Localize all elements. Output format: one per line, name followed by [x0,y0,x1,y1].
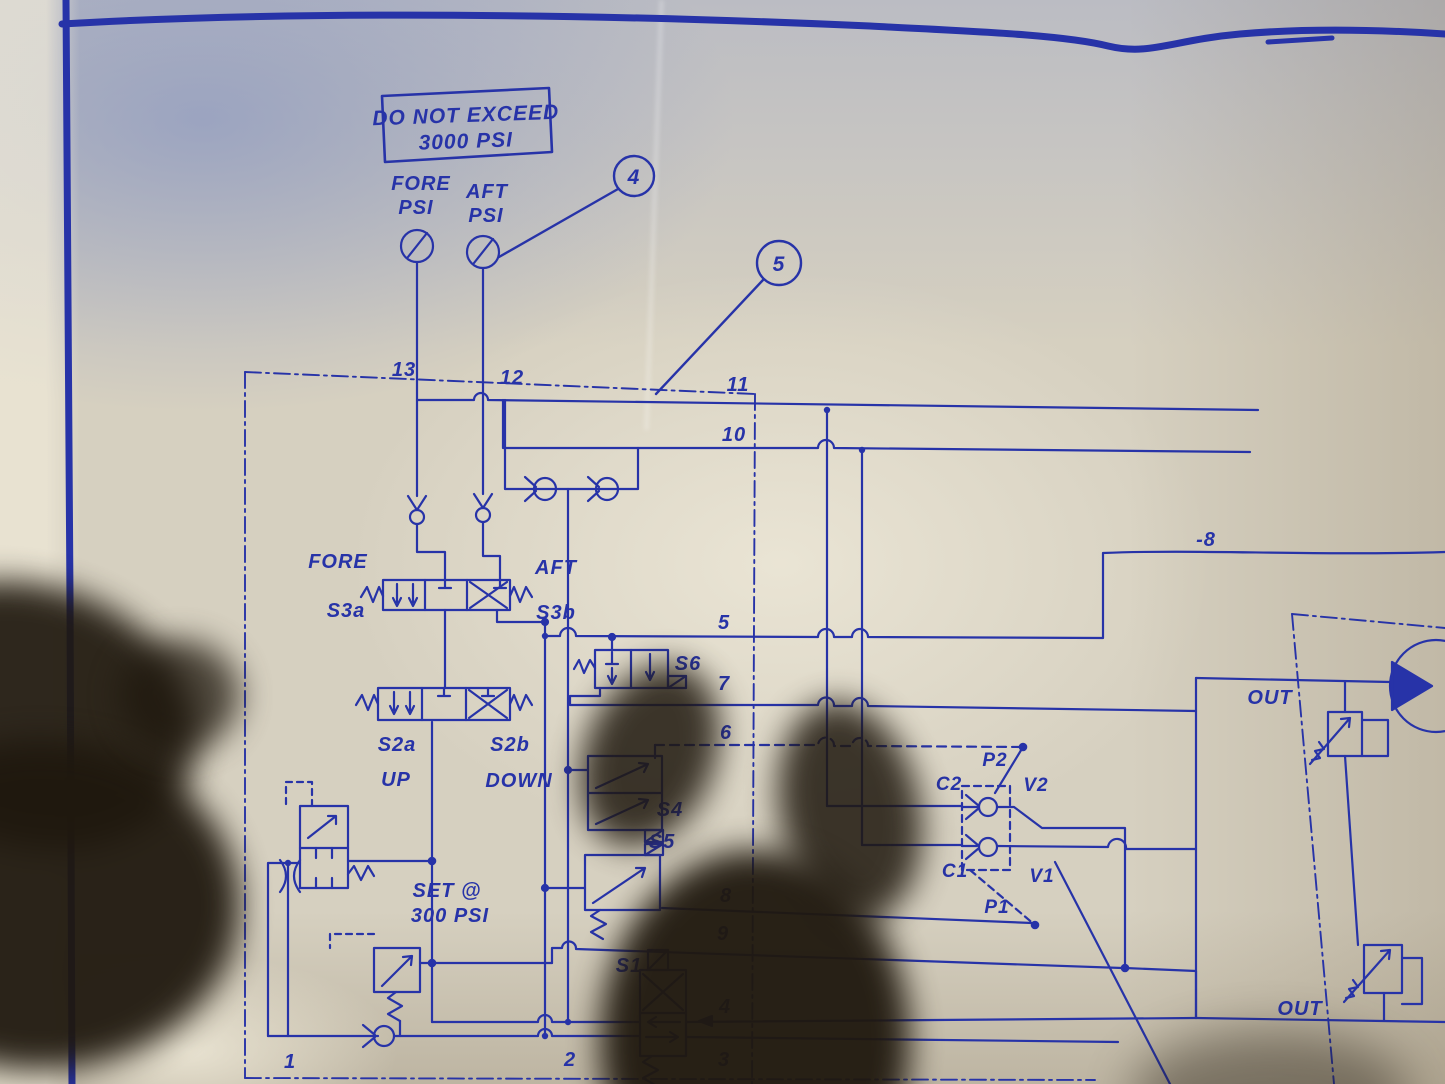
port-c2-label: C2 [936,774,962,795]
valve-s2 [356,688,532,720]
line-7-number: 7 [718,673,730,695]
set-pressure-line1: SET @ [413,880,482,902]
port-v1-label: V1 [1029,866,1054,887]
set-pressure-line2: 300 PSI [411,905,489,927]
line-8-right-number: -8 [1196,529,1216,551]
valve-s3a-label: S3a [327,600,366,622]
fore-gauge-label: FORE [391,173,451,195]
aft-gauge-label: AFT [465,181,509,203]
warning-line1: DO NOT EXCEED [372,101,560,131]
counterbalance-valve [286,782,374,888]
out-lower-label: OUT [1277,998,1323,1020]
relief-valve-lower [1344,945,1422,1020]
fore-pressure-gauge [401,230,433,262]
line-2-number: 2 [563,1049,576,1071]
port-v2-label: V2 [1023,775,1048,796]
port-p1-label: P1 [984,897,1009,918]
port-p2-label: P2 [982,750,1007,771]
blueprint-photo: DO NOT EXCEED 3000 PSI FORE PSI AFT PSI … [0,0,1445,1084]
line-13-number: 13 [392,359,416,381]
line-12-number: 12 [500,367,524,389]
aft-direction-label: AFT [534,557,578,579]
warning-line2: 3000 PSI [418,128,513,154]
relief-valve-upper [1310,682,1388,945]
fore-gauge-unit: PSI [398,197,433,219]
valve-s3b-label: S3b [536,602,576,624]
motor-circuit [1196,640,1445,1022]
aft-pressure-gauge [467,236,499,268]
aft-gauge-unit: PSI [468,205,503,227]
hand-shadow-left-fingertip [120,640,240,750]
line-10-number: 10 [722,424,746,446]
valve-s3 [361,580,548,688]
callout-5-number: 5 [773,253,786,276]
fore-direction-label: FORE [308,551,368,573]
port-c1-label: C1 [942,861,968,882]
valve-s2a-label: S2a [378,734,417,756]
callout-4-number: 4 [627,166,641,189]
gauge-lines [408,262,500,580]
down-direction-label: DOWN [485,770,552,792]
up-direction-label: UP [381,769,411,791]
line-5-number: 5 [718,612,730,634]
line-11-number: 11 [727,374,750,396]
line-6-number: 6 [720,722,732,744]
out-upper-label: OUT [1247,687,1293,709]
relief-valve-300psi [330,934,420,1036]
valve-s2b-label: S2b [490,734,530,756]
line-1-number: 1 [284,1051,296,1073]
